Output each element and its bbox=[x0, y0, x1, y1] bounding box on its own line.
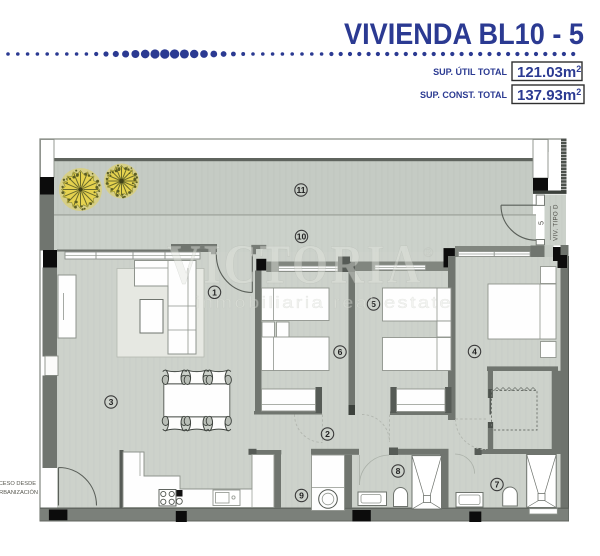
svg-text:2: 2 bbox=[325, 429, 330, 439]
svg-text:ACCESO DESDE: ACCESO DESDE bbox=[0, 481, 36, 487]
svg-text:URBANIZACIÓN: URBANIZACIÓN bbox=[0, 489, 38, 496]
svg-text:VIV. TIPO D: VIV. TIPO D bbox=[553, 204, 560, 241]
svg-text:inmobiliaria real estate: inmobiliaria real estate bbox=[195, 293, 453, 312]
svg-text:4: 4 bbox=[472, 347, 477, 357]
svg-text:9: 9 bbox=[299, 491, 304, 501]
svg-text:3: 3 bbox=[109, 397, 114, 407]
svg-text:137.93m2: 137.93m2 bbox=[517, 87, 581, 104]
svg-text:®: ® bbox=[423, 246, 434, 261]
svg-text:6: 6 bbox=[338, 347, 343, 357]
svg-text:5: 5 bbox=[537, 221, 546, 225]
svg-text:SUP. CONST. TOTAL: SUP. CONST. TOTAL bbox=[420, 90, 508, 100]
svg-text:11: 11 bbox=[296, 185, 305, 195]
svg-text:121.03m2: 121.03m2 bbox=[517, 64, 581, 81]
svg-text:VICTORIA: VICTORIA bbox=[167, 234, 423, 296]
svg-text:7: 7 bbox=[495, 480, 500, 490]
svg-text:VIVIENDA BL10 - 5: VIVIENDA BL10 - 5 bbox=[344, 18, 584, 51]
svg-text:8: 8 bbox=[396, 466, 401, 476]
svg-text:SUP. ÚTIL TOTAL: SUP. ÚTIL TOTAL bbox=[433, 66, 507, 77]
